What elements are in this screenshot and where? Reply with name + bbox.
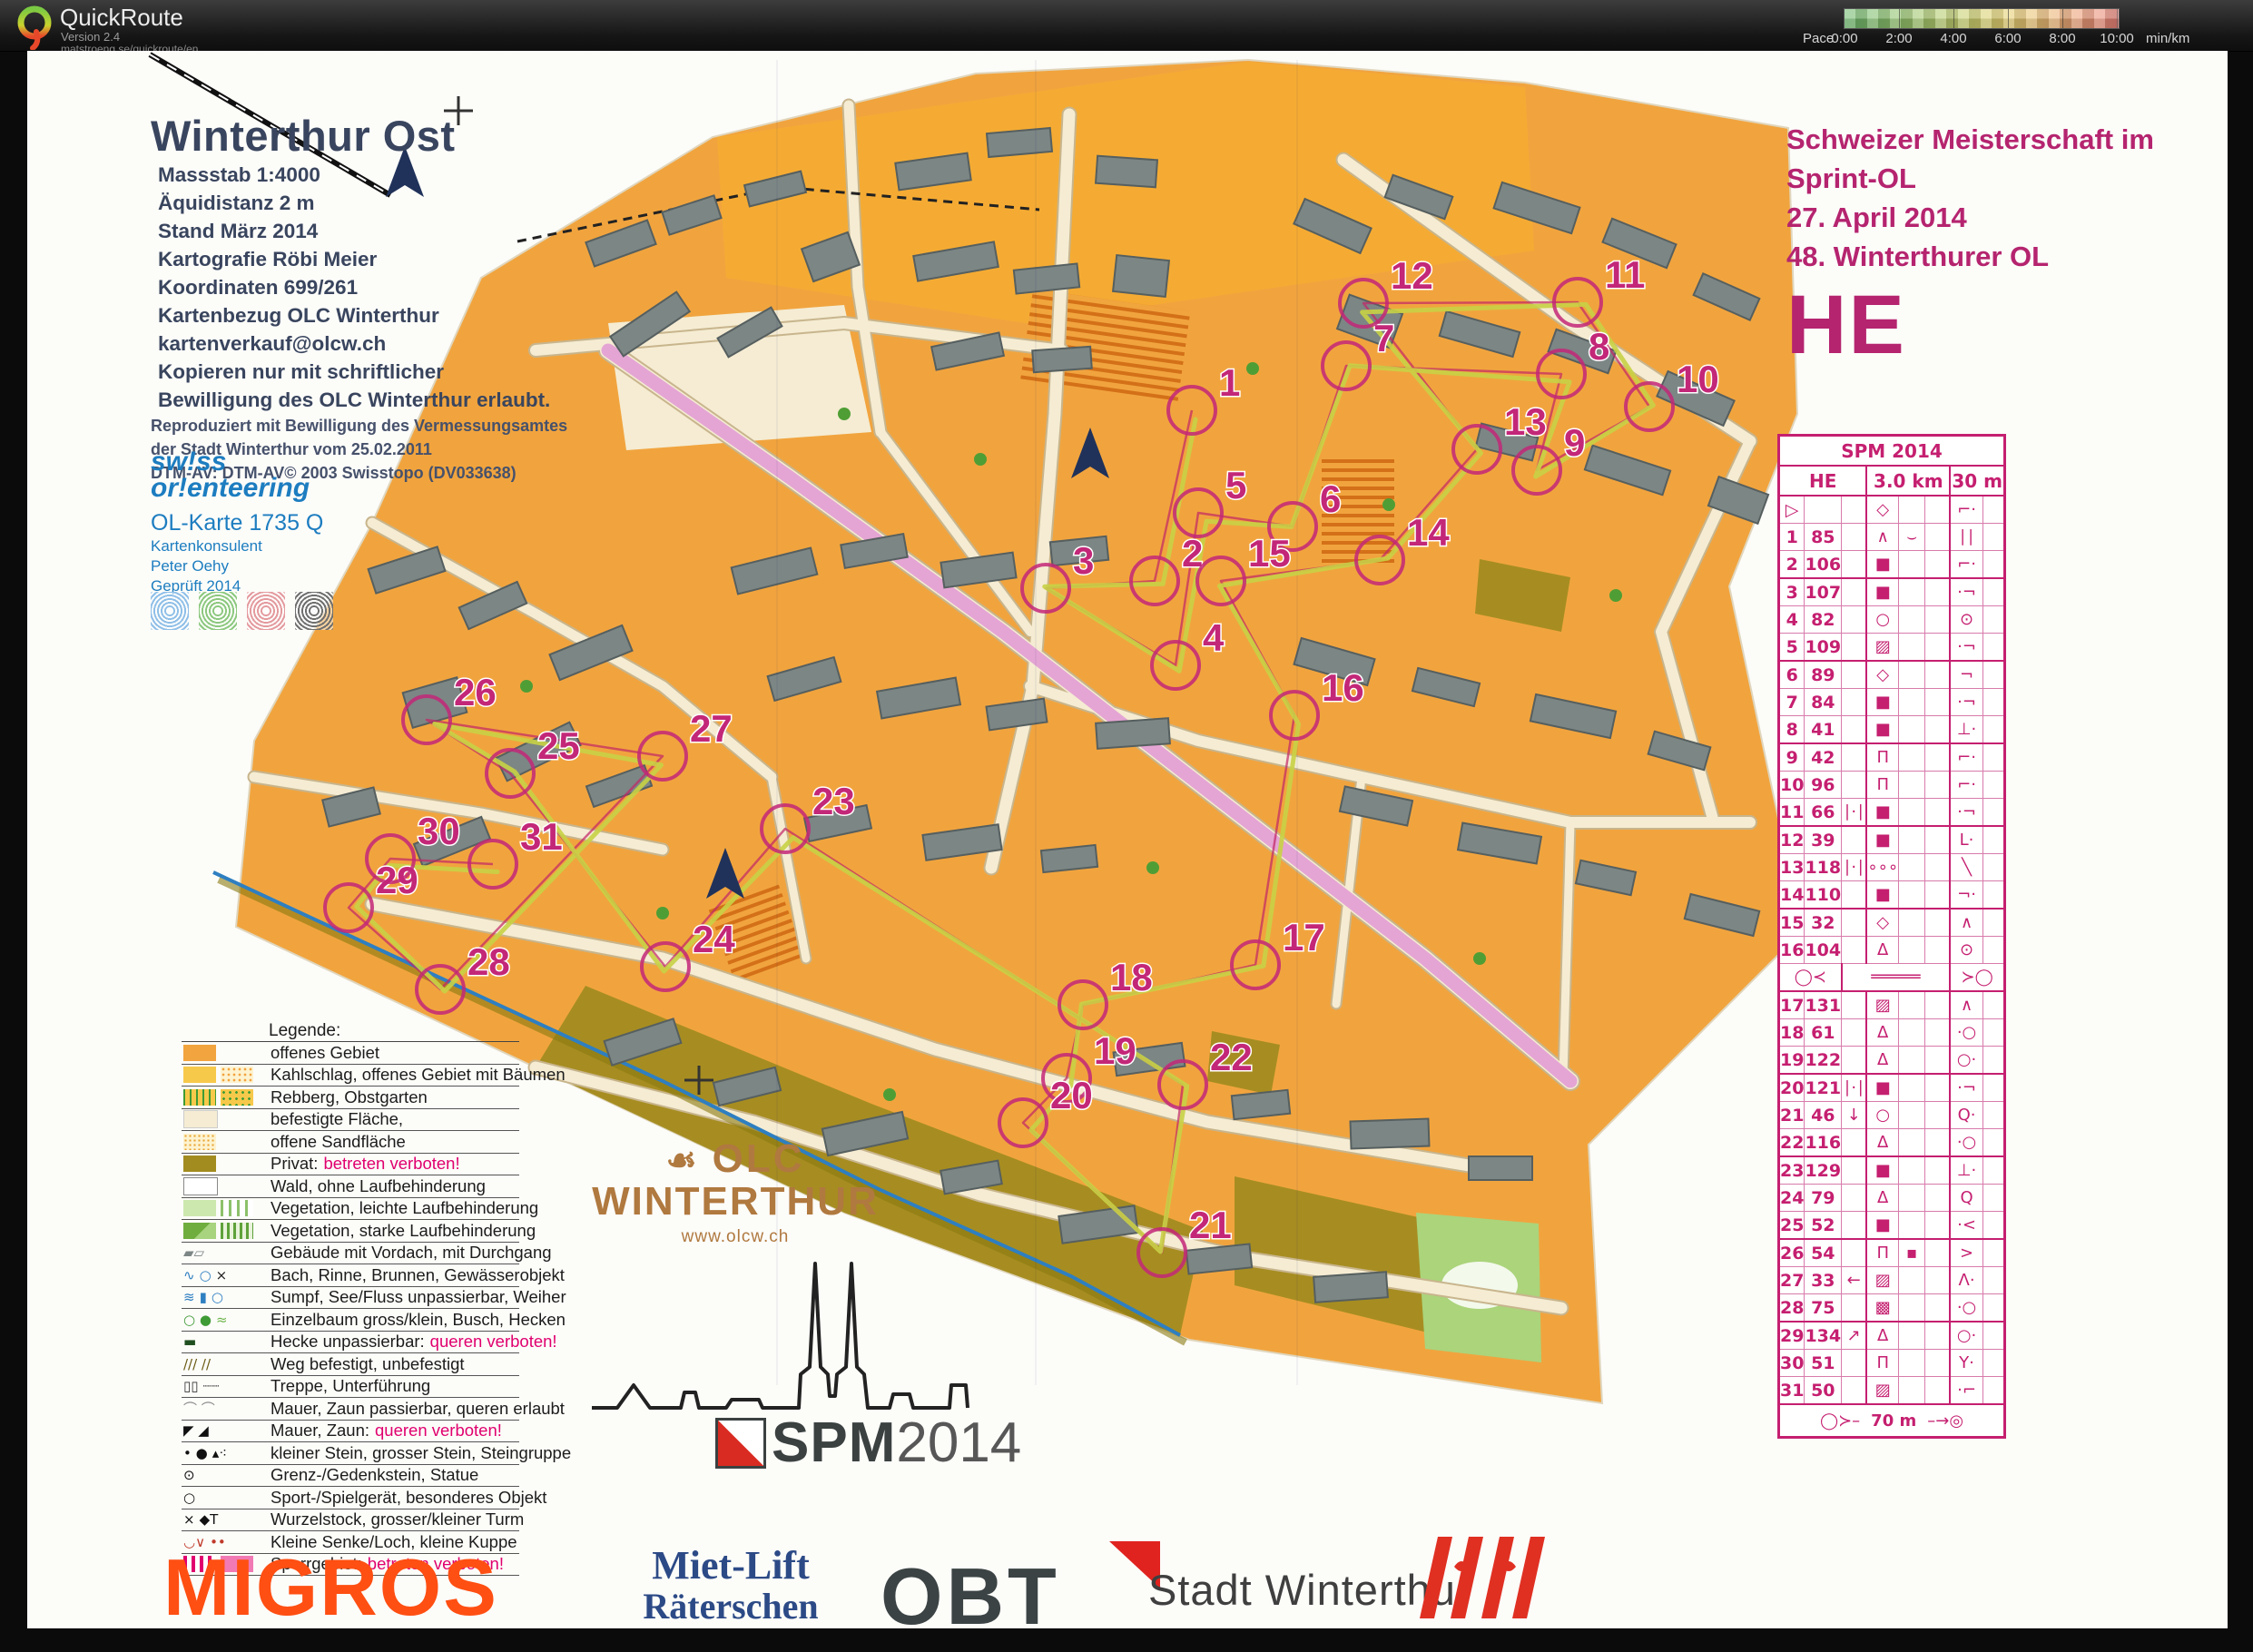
- control-number: 13: [1779, 854, 1805, 881]
- swiss-orienteering-logo: sw!ss: [151, 450, 323, 474]
- legend-alert: betreten verboten!: [323, 1154, 459, 1173]
- control-row-22: 22116Δ·○: [1779, 1129, 2005, 1157]
- legend-label: Vegetation, starke Laufbehinderung: [271, 1221, 536, 1241]
- control-code: 96: [1805, 772, 1842, 799]
- control-code: 106: [1805, 551, 1842, 579]
- map-sheet: 1234567891011121314151617181920212223242…: [27, 51, 2228, 1628]
- control-number-label: 9: [1564, 421, 1585, 464]
- control-number: 11: [1779, 799, 1805, 827]
- control-number: 19: [1779, 1047, 1805, 1075]
- tree: [520, 680, 533, 693]
- control-number: 21: [1779, 1102, 1805, 1129]
- legend-label: Kahlschlag, offenes Gebiet mit Bäumen: [271, 1065, 566, 1085]
- control-number-label: 11: [1605, 253, 1645, 296]
- legend-swatch: ▰▱: [183, 1244, 204, 1261]
- sponsor-obt: OBT: [881, 1550, 1060, 1643]
- control-row-29: 29134↗Δ○·: [1779, 1322, 2005, 1350]
- control-number-label: 4: [1203, 616, 1225, 659]
- control-number-label: 18: [1110, 956, 1153, 998]
- control-number: 5: [1779, 634, 1805, 662]
- tree: [974, 453, 987, 466]
- legend-item: /// //Weg befestigt, unbefestigt: [182, 1353, 519, 1376]
- legend-item: Privat:betreten verboten!: [182, 1154, 519, 1176]
- legend-swatch: ▯▯: [183, 1378, 199, 1394]
- tree: [1246, 362, 1259, 375]
- legend-label: offene Sandfläche: [271, 1132, 406, 1152]
- legend-item: Vegetation, starke Laufbehinderung: [182, 1220, 519, 1243]
- legend-item: ×◆TWurzelstock, grosser/kleiner Turm: [182, 1509, 519, 1532]
- control-number-label: 5: [1225, 464, 1246, 506]
- control-number-label: 12: [1391, 254, 1433, 297]
- control-code: 104: [1805, 937, 1842, 964]
- map-info-line: Koordinaten 699/261: [151, 273, 586, 301]
- control-number-label: 3: [1073, 539, 1094, 582]
- control-number-label: 31: [520, 815, 563, 858]
- legend-swatch: [221, 1223, 253, 1239]
- legend-label: Einzelbaum gross/klein, Busch, Hecken: [271, 1310, 566, 1330]
- control-number-label: 25: [537, 724, 580, 767]
- legend-title: Legende:: [182, 1020, 519, 1042]
- control-number: 1: [1779, 524, 1805, 551]
- legend-item: ▯▯┈┈Treppe, Unterführung: [182, 1376, 519, 1399]
- control-number-label: 27: [690, 707, 733, 750]
- control-row-15: 1532◇∧: [1779, 909, 2005, 937]
- legend-item: offene Sandfläche: [182, 1131, 519, 1154]
- control-row-3: 3107■·¬: [1779, 578, 2005, 606]
- tree: [838, 408, 851, 420]
- pace-tick: 4:00: [1940, 31, 1966, 46]
- legend-item: offenes Gebiet: [182, 1042, 519, 1065]
- olc-winterthur-logo: ☙OLC WINTERTHUR www.olcw.ch: [572, 1136, 899, 1247]
- control-row-5: 5109▨·¬: [1779, 634, 2005, 662]
- control-row-27: 2733←▨Λ·: [1779, 1267, 2005, 1294]
- pace-tick: 2:00: [1885, 31, 1912, 46]
- control-number: 28: [1779, 1294, 1805, 1323]
- map-info-small-line: Reproduziert mit Bewilligung des Vermess…: [151, 414, 586, 438]
- app-header: QuickRoute Version 2.4 matstroeng.se/qui…: [0, 0, 2253, 52]
- control-number: 29: [1779, 1322, 1805, 1350]
- sheet-title: SPM 2014: [1779, 436, 2005, 467]
- legend-label: Wald, ohne Laufbehinderung: [271, 1176, 486, 1196]
- control-number-label: 22: [1210, 1036, 1253, 1078]
- legend-item: ▬Hecke unpassierbar:queren verboten!: [182, 1332, 519, 1354]
- control-code: 84: [1805, 689, 1842, 716]
- control-code: 79: [1805, 1185, 1842, 1212]
- quickroute-logo: [15, 5, 54, 50]
- building: [1032, 347, 1092, 372]
- control-code: 110: [1805, 881, 1842, 910]
- building: [1351, 1119, 1430, 1149]
- pace-gradient-bar: [1844, 8, 2120, 29]
- control-number: 10: [1779, 772, 1805, 799]
- legend-item: ○ ●≈Einzelbaum gross/klein, Busch, Hecke…: [182, 1309, 519, 1332]
- control-row-18: 1861Δ·○: [1779, 1019, 2005, 1047]
- print-registration-swatches: [151, 592, 333, 630]
- control-description-sheet: SPM 2014HE3.0 km30 m▷◇⌐·185∧⌣∣∣2106■⌐·31…: [1777, 434, 2006, 1439]
- legend-alert: queren verboten!: [375, 1421, 502, 1440]
- legend-swatch: [183, 1134, 216, 1150]
- control-number-label: 28: [467, 940, 510, 983]
- legend-swatch: ◆T: [200, 1511, 219, 1528]
- legend-swatch: ≋: [183, 1289, 195, 1305]
- control-code: 75: [1805, 1294, 1842, 1323]
- legend-swatch: ×: [183, 1511, 195, 1528]
- control-row-1: 185∧⌣∣∣: [1779, 524, 2005, 551]
- building: [1232, 1090, 1290, 1119]
- control-number: 23: [1779, 1156, 1805, 1185]
- control-row-31: 3150▨·⌐: [1779, 1377, 2005, 1405]
- legend-swatch: ○: [183, 1490, 195, 1506]
- legend-swatch: ×: [216, 1267, 228, 1283]
- legend-label: Grenz-/Gedenkstein, Statue: [271, 1465, 478, 1485]
- control-row-16: 16104Δ⊙: [1779, 937, 2005, 964]
- swiss-orienteering-block: sw!ss or!enteering OL-Karte 1735 Q Karte…: [151, 450, 323, 596]
- legend-label: Sumpf, See/Fluss unpassierbar, Weiher: [271, 1287, 566, 1307]
- sponsor-migros: MIGROS: [163, 1541, 498, 1634]
- control-row-7: 784■·¬: [1779, 689, 2005, 716]
- pace-unit: min/km: [2146, 31, 2189, 46]
- orienteering-flag-icon: [715, 1418, 766, 1469]
- control-number: 27: [1779, 1267, 1805, 1294]
- legend-label: Vegetation, leichte Laufbehinderung: [271, 1198, 538, 1218]
- control-code: 134: [1805, 1322, 1842, 1350]
- legend-item: ◤ ◢Mauer, Zaun:queren verboten!: [182, 1421, 519, 1443]
- control-number: 12: [1779, 826, 1805, 854]
- control-code: 61: [1805, 1019, 1842, 1047]
- legend-swatch: • ●: [183, 1445, 208, 1461]
- legend-label: offenes Gebiet: [271, 1043, 379, 1063]
- event-title-block: Schweizer Meisterschaft im Sprint-OL 27.…: [1786, 120, 2213, 361]
- building: [1469, 1156, 1532, 1180]
- legend-swatch: [183, 1223, 216, 1239]
- pace-tick: 8:00: [2049, 31, 2075, 46]
- control-code: 107: [1805, 578, 1842, 606]
- map-title-block: Winterthur Ost Massstab 1:4000Äquidistan…: [151, 111, 586, 485]
- control-code: 42: [1805, 743, 1842, 772]
- control-number: 31: [1779, 1377, 1805, 1405]
- building: [1041, 845, 1097, 872]
- legend-label: Sport-/Spielgerät, besonderes Objekt: [271, 1488, 546, 1508]
- control-code: 118: [1805, 854, 1842, 881]
- control-number-label: 6: [1320, 477, 1341, 520]
- legend-item: ∿○×Bach, Rinne, Brunnen, Gewässerobjekt: [182, 1264, 519, 1287]
- control-number-label: 13: [1504, 400, 1547, 443]
- map-info-line: Stand März 2014: [151, 217, 586, 245]
- control-row-8: 841■⊥·: [1779, 716, 2005, 744]
- legend-swatch: [221, 1200, 253, 1216]
- control-code: 122: [1805, 1047, 1842, 1075]
- control-code: 32: [1805, 909, 1842, 937]
- control-number: 16: [1779, 937, 1805, 964]
- control-number: 9: [1779, 743, 1805, 772]
- control-number-label: 26: [454, 671, 497, 713]
- app-version: Version 2.4: [61, 30, 120, 44]
- control-code: 131: [1805, 991, 1842, 1019]
- control-number-label: 19: [1094, 1029, 1136, 1072]
- sheet-class: HE: [1779, 466, 1867, 496]
- control-number: ▷: [1779, 496, 1805, 524]
- control-number: 7: [1779, 689, 1805, 716]
- control-code: 46: [1805, 1102, 1842, 1129]
- map-number: OL-Karte 1735 Q: [151, 510, 323, 536]
- legend-label: Treppe, Unterführung: [271, 1376, 430, 1396]
- control-row-14: 14110■¬·: [1779, 881, 2005, 910]
- map-consultant: Peter Oehy: [151, 556, 323, 576]
- event-date: 27. April 2014: [1786, 198, 2213, 237]
- control-number-label: 8: [1589, 325, 1609, 368]
- legend-item: ⌒ ⌒Mauer, Zaun passierbar, queren erlaub…: [182, 1398, 519, 1421]
- legend-swatch: ┈┈: [203, 1378, 220, 1394]
- control-code: 89: [1805, 661, 1842, 689]
- control-number: 24: [1779, 1185, 1805, 1212]
- control-number: 2: [1779, 551, 1805, 579]
- control-number: 22: [1779, 1129, 1805, 1157]
- pace-tick: 6:00: [1994, 31, 2021, 46]
- scan-fold: [1035, 60, 1037, 1385]
- legend-label: Wurzelstock, grosser/kleiner Turm: [271, 1509, 524, 1529]
- control-code: 82: [1805, 606, 1842, 634]
- taped-route-row: ◯≺═════≻◯: [1779, 964, 2005, 992]
- control-row-28: 2875▩·○: [1779, 1294, 2005, 1323]
- legend-item: Wald, ohne Laufbehinderung: [182, 1175, 519, 1198]
- legend-label: befestigte Fläche,: [271, 1109, 403, 1129]
- control-number: 26: [1779, 1239, 1805, 1267]
- control-number: 18: [1779, 1019, 1805, 1047]
- control-code: 52: [1805, 1212, 1842, 1240]
- legend-label: Gebäude mit Vordach, mit Durchgang: [271, 1243, 552, 1263]
- legend-label: Rebberg, Obstgarten: [271, 1087, 428, 1107]
- legend-swatch: [221, 1089, 253, 1106]
- control-row-12: 1239■L·: [1779, 826, 2005, 854]
- app-title: QuickRoute: [60, 4, 183, 32]
- map-title: Winterthur Ost: [151, 111, 586, 161]
- legend-item: befestigte Fläche,: [182, 1109, 519, 1132]
- control-row-19: 19122Δ○·: [1779, 1047, 2005, 1075]
- control-code: 129: [1805, 1156, 1842, 1185]
- legend-item: Vegetation, leichte Laufbehinderung: [182, 1198, 519, 1221]
- legend-item: Kahlschlag, offenes Gebiet mit Bäumen: [182, 1065, 519, 1087]
- legend-label: Mauer, Zaun:queren verboten!: [271, 1421, 502, 1441]
- control-row-26: 2654Π▪>: [1779, 1239, 2005, 1267]
- control-number: 15: [1779, 909, 1805, 937]
- legend-item: ▰▱Gebäude mit Vordach, mit Durchgang: [182, 1243, 519, 1265]
- legend-swatch: ▬: [183, 1333, 196, 1350]
- control-number-label: 14: [1407, 511, 1450, 554]
- control-code: 66: [1805, 799, 1842, 827]
- control-code: 33: [1805, 1267, 1842, 1294]
- control-code: 39: [1805, 826, 1842, 854]
- control-row-11: 1166∣·∣■·¬: [1779, 799, 2005, 827]
- control-row-17: 17131▨∧: [1779, 991, 2005, 1019]
- control-row-2: 2106■⌐·: [1779, 551, 2005, 579]
- legend-swatch: [183, 1067, 216, 1083]
- map-info-line: Kartenbezug OLC Winterthur: [151, 301, 586, 329]
- building: [1096, 156, 1157, 188]
- legend-label: Privat:betreten verboten!: [271, 1154, 460, 1174]
- legend-item: • ●▴⁖kleiner Stein, grosser Stein, Stein…: [182, 1442, 519, 1465]
- print-swatch: [199, 592, 237, 630]
- control-code: 121: [1805, 1074, 1842, 1102]
- map-info-line: Massstab 1:4000: [151, 161, 586, 189]
- map-legend: Legende: offenes GebietKahlschlag, offen…: [182, 1020, 519, 1576]
- control-number-label: 20: [1050, 1074, 1093, 1116]
- tree: [1609, 589, 1622, 602]
- control-code: 41: [1805, 716, 1842, 744]
- control-row-13: 13118∣·∣∘∘∘╲: [1779, 854, 2005, 881]
- map-info-line: Äquidistanz 2 m: [151, 189, 586, 217]
- control-row-9: 942Π⌐·: [1779, 743, 2005, 772]
- control-code: 109: [1805, 634, 1842, 662]
- course-climb: 30 m: [1950, 466, 2004, 496]
- control-number: 3: [1779, 578, 1805, 606]
- control-code: 54: [1805, 1239, 1842, 1267]
- control-number-label: 15: [1248, 532, 1291, 575]
- control-row-6: 689◇¬: [1779, 661, 2005, 689]
- control-number-label: 24: [693, 918, 735, 960]
- legend-swatch: [221, 1067, 253, 1083]
- legend-swatch: /// //: [183, 1356, 211, 1372]
- building: [1113, 255, 1169, 297]
- legend-swatch: [183, 1177, 218, 1195]
- control-row-23: 23129■⊥·: [1779, 1156, 2005, 1185]
- building: [1313, 1272, 1388, 1303]
- control-number-label: 21: [1189, 1204, 1232, 1246]
- legend-swatch: ▴⁖: [212, 1445, 227, 1461]
- print-swatch: [151, 592, 189, 630]
- pace-tick: 0:00: [1831, 31, 1857, 46]
- control-row-20: 20121∣·∣■·¬: [1779, 1074, 2005, 1102]
- course-class: HE: [1786, 289, 2213, 361]
- legend-swatch: [183, 1200, 216, 1216]
- map-info-line: kartenverkauf@olcw.ch: [151, 329, 586, 358]
- control-number: 4: [1779, 606, 1805, 634]
- lion-icon: ☙: [666, 1142, 700, 1180]
- tree: [1473, 952, 1486, 965]
- map-info-line: Kartografie Röbi Meier: [151, 245, 586, 273]
- legend-item: Rebberg, Obstgarten: [182, 1087, 519, 1109]
- legend-alert: queren verboten!: [430, 1332, 557, 1351]
- legend-item: ⊙Grenz-/Gedenkstein, Statue: [182, 1465, 519, 1488]
- control-row-▷: ▷◇⌐·: [1779, 496, 2005, 524]
- pace-legend: Pace0:002:004:006:008:0010:00min/km: [1801, 2, 2200, 51]
- legend-label: Mauer, Zaun passierbar, queren erlaubt: [271, 1399, 565, 1419]
- print-swatch: [295, 592, 333, 630]
- legend-swatch: ≈: [216, 1312, 228, 1328]
- legend-label: Hecke unpassierbar:queren verboten!: [271, 1332, 557, 1352]
- event-name: Schweizer Meisterschaft im Sprint-OL: [1786, 120, 2213, 198]
- legend-swatch: [183, 1045, 216, 1061]
- control-code: 116: [1805, 1129, 1842, 1157]
- print-swatch: [247, 592, 285, 630]
- legend-label: Bach, Rinne, Brunnen, Gewässerobjekt: [271, 1265, 565, 1285]
- control-number-label: 17: [1283, 916, 1325, 959]
- control-number-label: 10: [1677, 358, 1719, 400]
- control-number-label: 23: [812, 780, 855, 822]
- building: [987, 128, 1052, 157]
- pace-label: Pace: [1803, 31, 1834, 46]
- legend-swatch: ▮: [200, 1289, 207, 1305]
- control-row-24: 2479ΔQ: [1779, 1185, 2005, 1212]
- control-number-label: 1: [1219, 361, 1240, 404]
- tree: [656, 907, 669, 919]
- legend-swatch: ○: [212, 1289, 223, 1305]
- control-code: 51: [1805, 1350, 1842, 1377]
- legend-swatch: ○: [200, 1267, 212, 1283]
- control-number: 25: [1779, 1212, 1805, 1240]
- building: [1096, 718, 1170, 749]
- legend-item: ≋▮○Sumpf, See/Fluss unpassierbar, Weiher: [182, 1287, 519, 1310]
- control-row-10: 1096Π⌐·: [1779, 772, 2005, 799]
- control-number: 14: [1779, 881, 1805, 910]
- control-number-label: 30: [418, 810, 460, 852]
- quickroute-window: QuickRoute Version 2.4 matstroeng.se/qui…: [0, 0, 2253, 1652]
- legend-swatch: [183, 1089, 216, 1106]
- legend-swatch: [183, 1155, 216, 1172]
- control-number: 6: [1779, 661, 1805, 689]
- finish-row: ◯≻–70 m–→◎: [1779, 1404, 2005, 1438]
- legend-swatch: ○ ●: [183, 1312, 212, 1328]
- control-number: 30: [1779, 1350, 1805, 1377]
- pace-tick: 10:00: [2100, 31, 2134, 46]
- control-row-30: 3051ΠY·: [1779, 1350, 2005, 1377]
- legend-swatch: ◤ ◢: [183, 1422, 209, 1439]
- legend-swatch: ∿: [183, 1267, 195, 1283]
- control-row-4: 482○⊙: [1779, 606, 2005, 634]
- winterthur-w-icon: [1407, 1532, 1561, 1623]
- control-code: 50: [1805, 1377, 1842, 1405]
- control-code: 85: [1805, 524, 1842, 551]
- map-info-line: Kopieren nur mit schriftlicher: [151, 358, 586, 386]
- control-number: 8: [1779, 716, 1805, 744]
- control-row-25: 2552■·<: [1779, 1212, 2005, 1240]
- tree: [883, 1088, 896, 1101]
- control-number-label: 16: [1322, 666, 1364, 709]
- control-row-21: 2146↓○Q·: [1779, 1102, 2005, 1129]
- control-number: 17: [1779, 991, 1805, 1019]
- city-skyline-drawing: [590, 1240, 980, 1421]
- legend-swatch: ⌒ ⌒: [183, 1401, 215, 1417]
- map-info-line: Bewilligung des OLC Winterthur erlaubt.: [151, 386, 586, 414]
- tree: [1382, 498, 1395, 511]
- control-code: [1805, 496, 1842, 524]
- legend-label: kleiner Stein, grosser Stein, Steingrupp…: [271, 1443, 571, 1463]
- course-length: 3.0 km: [1866, 466, 1950, 496]
- legend-item: ○Sport-/Spielgerät, besonderes Objekt: [182, 1487, 519, 1509]
- spm2014-logo: SPM 2014: [715, 1411, 1021, 1475]
- event-host: 48. Winterthurer OL: [1786, 237, 2213, 276]
- legend-label: Weg befestigt, unbefestigt: [271, 1354, 465, 1374]
- legend-swatch: [183, 1110, 218, 1128]
- control-number: 20: [1779, 1074, 1805, 1102]
- tree: [1146, 861, 1159, 874]
- legend-swatch: ⊙: [183, 1467, 195, 1483]
- sponsor-mietlift: Miet-Lift Räterschen: [595, 1545, 867, 1627]
